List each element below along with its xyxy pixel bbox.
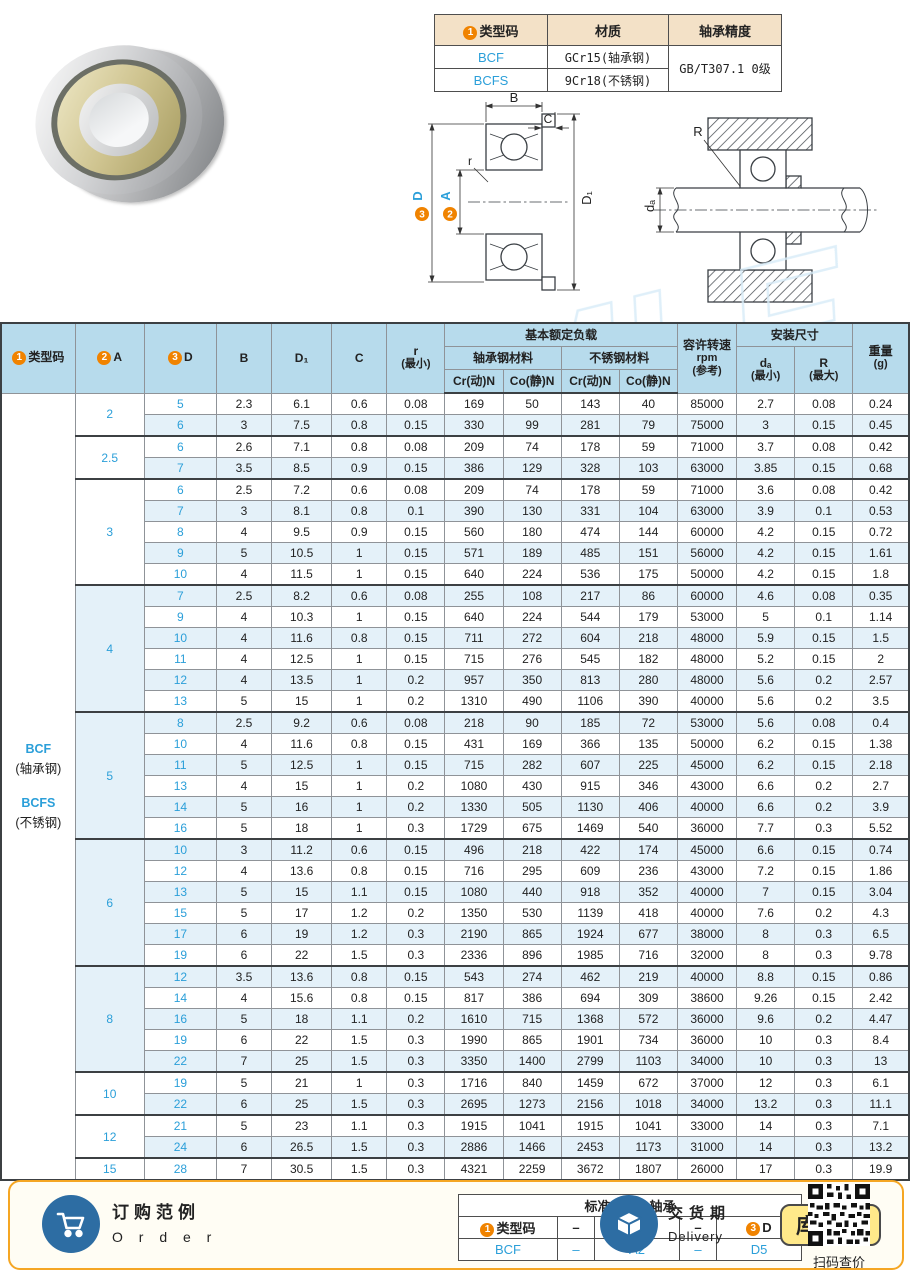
- cell-co-stainless: 79: [619, 415, 677, 437]
- cell-b: 2.6: [216, 436, 271, 458]
- cell-b: 4: [216, 734, 271, 755]
- cell-r: 0.15: [387, 649, 445, 670]
- cell-d: 24: [144, 1137, 216, 1159]
- spec-table: 1类型码 材质 轴承精度 BCF GCr15(轴承钢) GB/T307.1 0级…: [434, 14, 782, 92]
- cell-r: 0.3: [387, 1030, 445, 1051]
- cell-d1: 7.5: [272, 415, 332, 437]
- cell-da: 10: [737, 1051, 795, 1073]
- cell-b: 7: [216, 1158, 271, 1180]
- cell-r-max: 0.08: [795, 585, 853, 607]
- cell-co-stainless: 672: [619, 1072, 677, 1094]
- bearing-photo: [22, 26, 232, 221]
- cell-d: 12: [144, 861, 216, 882]
- cell-b: 6: [216, 945, 271, 967]
- cell-a: 10: [75, 1072, 144, 1115]
- spec-code-bcfs[interactable]: BCFS: [435, 69, 548, 92]
- cell-da: 7.2: [737, 861, 795, 882]
- cell-weight: 1.14: [853, 607, 909, 628]
- cell-co-stainless: 86: [619, 585, 677, 607]
- cell-r-max: 0.2: [795, 691, 853, 713]
- badge-1-icon: 1: [12, 351, 26, 365]
- cell-cr-stainless: 918: [561, 882, 619, 903]
- cell-d1: 21: [272, 1072, 332, 1094]
- cell-co-steel: 490: [503, 691, 561, 713]
- cell-c: 1.5: [332, 1158, 387, 1180]
- cell-b: 5: [216, 882, 271, 903]
- cell-c: 0.6: [332, 712, 387, 734]
- cell-cr-steel: 2886: [445, 1137, 503, 1159]
- cell-rpm: 26000: [677, 1158, 736, 1180]
- cell-co-stainless: 1103: [619, 1051, 677, 1073]
- cell-d: 5: [144, 393, 216, 415]
- cell-d: 11: [144, 755, 216, 776]
- cell-rpm: 43000: [677, 776, 736, 797]
- cell-co-stainless: 734: [619, 1030, 677, 1051]
- cell-r-max: 0.3: [795, 1094, 853, 1116]
- cell-rpm: 63000: [677, 501, 736, 522]
- cell-a: 6: [75, 839, 144, 966]
- cell-r: 0.3: [387, 818, 445, 840]
- cell-r: 0.1: [387, 501, 445, 522]
- cell-c: 1.1: [332, 882, 387, 903]
- cell-co-stainless: 1018: [619, 1094, 677, 1116]
- cell-co-steel: 1041: [503, 1115, 561, 1137]
- cell-r: 0.3: [387, 1072, 445, 1094]
- cell-co-steel: 99: [503, 415, 561, 437]
- main-table: 1类型码 2A 3D B D₁ C r(最小) 基本额定负载 容许转速rpm(参…: [0, 322, 910, 1181]
- cell-rpm: 45000: [677, 755, 736, 776]
- cell-d1: 22: [272, 945, 332, 967]
- cell-cr-steel: 571: [445, 543, 503, 564]
- cell-c: 1: [332, 691, 387, 713]
- cell-weight: 0.72: [853, 522, 909, 543]
- table-row: 1528730.51.50.3432122593672180726000170.…: [1, 1158, 909, 1180]
- cell-d: 8: [144, 712, 216, 734]
- cell-cr-stainless: 694: [561, 988, 619, 1009]
- cell-cr-stainless: 1368: [561, 1009, 619, 1030]
- cell-weight: 3.04: [853, 882, 909, 903]
- cell-cr-stainless: 604: [561, 628, 619, 649]
- cell-d1: 12.5: [272, 755, 332, 776]
- cell-b: 4: [216, 861, 271, 882]
- cell-co-stainless: 309: [619, 988, 677, 1009]
- cell-cr-stainless: 422: [561, 839, 619, 861]
- cell-da: 6.6: [737, 839, 795, 861]
- cell-b: 5: [216, 818, 271, 840]
- delivery-label: 交货期 Delivery: [668, 1202, 731, 1248]
- cell-cr-stainless: 813: [561, 670, 619, 691]
- cell-cr-stainless: 1985: [561, 945, 619, 967]
- cell-b: 4: [216, 776, 271, 797]
- cell-d1: 6.1: [272, 393, 332, 415]
- cell-r-max: 0.15: [795, 458, 853, 480]
- cell-cr-steel: 1990: [445, 1030, 503, 1051]
- cell-weight: 2.42: [853, 988, 909, 1009]
- cell-d1: 22: [272, 1030, 332, 1051]
- cell-r-max: 0.15: [795, 628, 853, 649]
- cell-weight: 11.1: [853, 1094, 909, 1116]
- cell-r: 0.15: [387, 543, 445, 564]
- cell-co-stainless: 346: [619, 776, 677, 797]
- cell-r: 0.08: [387, 585, 445, 607]
- cell-cr-stainless: 328: [561, 458, 619, 480]
- header-load-group: 基本额定负载: [445, 323, 678, 347]
- cell-rpm: 43000: [677, 861, 736, 882]
- cell-weight: 0.45: [853, 415, 909, 437]
- cell-co-steel: 675: [503, 818, 561, 840]
- cell-cr-steel: 711: [445, 628, 503, 649]
- cell-a: 12: [75, 1115, 144, 1158]
- cell-b: 5: [216, 691, 271, 713]
- header-co-stainless: Co(静)N: [619, 370, 677, 394]
- cell-co-steel: 865: [503, 924, 561, 945]
- cell-co-stainless: 103: [619, 458, 677, 480]
- cell-co-steel: 715: [503, 1009, 561, 1030]
- cell-co-steel: 1400: [503, 1051, 561, 1073]
- cell-co-steel: 295: [503, 861, 561, 882]
- header-stainless-group: 不锈钢材料: [561, 347, 677, 370]
- cell-weight: 4.3: [853, 903, 909, 924]
- cell-co-steel: 129: [503, 458, 561, 480]
- cell-co-stainless: 59: [619, 436, 677, 458]
- cell-r: 0.3: [387, 1137, 445, 1159]
- cell-rpm: 31000: [677, 1137, 736, 1159]
- cell-d: 9: [144, 543, 216, 564]
- cell-r-max: 0.3: [795, 1051, 853, 1073]
- cell-rpm: 60000: [677, 522, 736, 543]
- svg-text:3: 3: [419, 210, 425, 221]
- cell-cr-steel: 1729: [445, 818, 503, 840]
- cell-co-steel: 90: [503, 712, 561, 734]
- cell-c: 1: [332, 607, 387, 628]
- cell-b: 7: [216, 1051, 271, 1073]
- cell-r-max: 0.2: [795, 1009, 853, 1030]
- cell-weight: 8.4: [853, 1030, 909, 1051]
- cell-da: 3.6: [737, 479, 795, 501]
- cell-d1: 13.6: [272, 966, 332, 988]
- cell-cr-stainless: 1139: [561, 903, 619, 924]
- order-dash: –: [558, 1217, 595, 1239]
- cell-co-steel: 272: [503, 628, 561, 649]
- cell-d: 6: [144, 415, 216, 437]
- cell-weight: 2.57: [853, 670, 909, 691]
- cell-co-steel: 1273: [503, 1094, 561, 1116]
- cell-d: 19: [144, 945, 216, 967]
- cell-r-max: 0.3: [795, 818, 853, 840]
- cell-r-max: 0.15: [795, 522, 853, 543]
- cell-rpm: 48000: [677, 628, 736, 649]
- cell-rpm: 45000: [677, 839, 736, 861]
- cell-c: 1: [332, 670, 387, 691]
- cell-co-stainless: 225: [619, 755, 677, 776]
- cell-co-stainless: 572: [619, 1009, 677, 1030]
- cell-b: 5: [216, 755, 271, 776]
- cell-weight: 1.61: [853, 543, 909, 564]
- cell-rpm: 53000: [677, 607, 736, 628]
- cell-d1: 15: [272, 776, 332, 797]
- cell-c: 0.8: [332, 988, 387, 1009]
- cell-c: 1: [332, 797, 387, 818]
- cell-co-steel: 274: [503, 966, 561, 988]
- cell-c: 1.5: [332, 1030, 387, 1051]
- cell-rpm: 40000: [677, 691, 736, 713]
- cell-cr-steel: 2190: [445, 924, 503, 945]
- cell-r-max: 0.3: [795, 1072, 853, 1094]
- cell-weight: 4.47: [853, 1009, 909, 1030]
- cell-co-steel: 896: [503, 945, 561, 967]
- cell-co-steel: 224: [503, 607, 561, 628]
- cell-cr-steel: 330: [445, 415, 503, 437]
- cell-c: 1: [332, 1072, 387, 1094]
- cell-co-steel: 180: [503, 522, 561, 543]
- cell-d1: 8.1: [272, 501, 332, 522]
- table-row: 101952110.31716840145967237000120.36.1: [1, 1072, 909, 1094]
- cell-co-stainless: 406: [619, 797, 677, 818]
- cell-weight: 0.86: [853, 966, 909, 988]
- cell-rpm: 56000: [677, 543, 736, 564]
- cell-weight: 6.1: [853, 1072, 909, 1094]
- cell-co-steel: 430: [503, 776, 561, 797]
- cell-cr-stainless: 1924: [561, 924, 619, 945]
- cell-d: 10: [144, 564, 216, 586]
- cell-da: 3.9: [737, 501, 795, 522]
- cell-d: 12: [144, 966, 216, 988]
- cell-da: 8: [737, 945, 795, 967]
- cell-r: 0.3: [387, 945, 445, 967]
- cell-da: 6.6: [737, 797, 795, 818]
- header-c: C: [332, 323, 387, 393]
- cell-co-stainless: 352: [619, 882, 677, 903]
- header-co-steel: Co(静)N: [503, 370, 561, 394]
- cell-cr-stainless: 545: [561, 649, 619, 670]
- cell-cr-steel: 1350: [445, 903, 503, 924]
- cell-c: 0.8: [332, 734, 387, 755]
- cell-d1: 19: [272, 924, 332, 945]
- cell-da: 3.7: [737, 436, 795, 458]
- cell-b: 5: [216, 797, 271, 818]
- dim-d1-label: D₁: [579, 191, 594, 205]
- cell-d1: 8.2: [272, 585, 332, 607]
- cell-cr-steel: 2336: [445, 945, 503, 967]
- cell-r-max: 0.15: [795, 415, 853, 437]
- header-cr-stainless: Cr(动)N: [561, 370, 619, 394]
- cell-r: 0.15: [387, 564, 445, 586]
- cell-weight: 0.24: [853, 393, 909, 415]
- cell-co-steel: 530: [503, 903, 561, 924]
- cell-cr-stainless: 536: [561, 564, 619, 586]
- cell-rpm: 60000: [677, 585, 736, 607]
- cell-c: 0.8: [332, 436, 387, 458]
- cell-weight: 1.86: [853, 861, 909, 882]
- cell-d1: 25: [272, 1094, 332, 1116]
- cell-da: 10: [737, 1030, 795, 1051]
- cell-r: 0.15: [387, 861, 445, 882]
- cell-cr-steel: 640: [445, 564, 503, 586]
- cell-c: 0.6: [332, 839, 387, 861]
- delivery-icon: [600, 1195, 658, 1253]
- cell-rpm: 75000: [677, 415, 736, 437]
- cell-r-max: 0.2: [795, 776, 853, 797]
- cell-cr-steel: 716: [445, 861, 503, 882]
- cell-da: 3: [737, 415, 795, 437]
- table-row: 8123.513.60.80.15543274462219400008.80.1…: [1, 966, 909, 988]
- cell-b: 5: [216, 543, 271, 564]
- cell-cr-steel: 2695: [445, 1094, 503, 1116]
- cell-weight: 0.42: [853, 436, 909, 458]
- cell-weight: 0.68: [853, 458, 909, 480]
- cell-cr-stainless: 1106: [561, 691, 619, 713]
- cell-cr-steel: 715: [445, 755, 503, 776]
- cell-d1: 18: [272, 818, 332, 840]
- cell-r: 0.15: [387, 734, 445, 755]
- cell-rpm: 40000: [677, 882, 736, 903]
- cell-r-max: 0.3: [795, 924, 853, 945]
- cell-rpm: 37000: [677, 1072, 736, 1094]
- cell-cr-stainless: 1459: [561, 1072, 619, 1094]
- cell-d: 10: [144, 839, 216, 861]
- cell-c: 1: [332, 818, 387, 840]
- cell-cr-steel: 1080: [445, 882, 503, 903]
- cell-r-max: 0.2: [795, 670, 853, 691]
- cell-rpm: 85000: [677, 393, 736, 415]
- cell-co-steel: 74: [503, 436, 561, 458]
- cell-cr-stainless: 474: [561, 522, 619, 543]
- cell-da: 2.7: [737, 393, 795, 415]
- cell-r: 0.15: [387, 839, 445, 861]
- cell-cr-stainless: 185: [561, 712, 619, 734]
- cell-rpm: 38600: [677, 988, 736, 1009]
- cell-r: 0.2: [387, 903, 445, 924]
- cell-cr-stainless: 331: [561, 501, 619, 522]
- cell-d: 10: [144, 628, 216, 649]
- cell-co-steel: 218: [503, 839, 561, 861]
- header-d1: D₁: [272, 323, 332, 393]
- cell-weight: 1.5: [853, 628, 909, 649]
- badge-1-icon: 1: [463, 26, 477, 40]
- cell-b: 2.5: [216, 712, 271, 734]
- cell-co-steel: 2259: [503, 1158, 561, 1180]
- cell-c: 0.6: [332, 585, 387, 607]
- cell-cr-steel: 1330: [445, 797, 503, 818]
- spec-header-type: 1类型码: [435, 15, 548, 46]
- cell-da: 4.6: [737, 585, 795, 607]
- cell-c: 1.2: [332, 903, 387, 924]
- cell-c: 0.8: [332, 501, 387, 522]
- cell-d: 22: [144, 1051, 216, 1073]
- cell-d: 6: [144, 479, 216, 501]
- cell-co-stainless: 72: [619, 712, 677, 734]
- cell-c: 0.6: [332, 479, 387, 501]
- cell-cr-steel: 1610: [445, 1009, 503, 1030]
- cell-b: 4: [216, 564, 271, 586]
- cell-d: 22: [144, 1094, 216, 1116]
- cell-co-steel: 505: [503, 797, 561, 818]
- cell-da: 8: [737, 924, 795, 945]
- cell-co-stainless: 151: [619, 543, 677, 564]
- cell-c: 1: [332, 543, 387, 564]
- cell-cr-stainless: 1901: [561, 1030, 619, 1051]
- cell-rpm: 63000: [677, 458, 736, 480]
- cell-cr-stainless: 1130: [561, 797, 619, 818]
- cell-r-max: 0.2: [795, 903, 853, 924]
- cell-rpm: 40000: [677, 797, 736, 818]
- cell-d: 16: [144, 818, 216, 840]
- type-code-cell: BCF(轴承钢)BCFS(不锈钢): [1, 393, 75, 1180]
- cell-da: 13.2: [737, 1094, 795, 1116]
- cell-cr-steel: 390: [445, 501, 503, 522]
- cell-da: 5.6: [737, 712, 795, 734]
- dim-d-label: 3 D: [410, 191, 429, 221]
- cell-b: 2.3: [216, 393, 271, 415]
- cell-weight: 3.5: [853, 691, 909, 713]
- cell-co-stainless: 1807: [619, 1158, 677, 1180]
- cell-r: 0.3: [387, 1158, 445, 1180]
- cell-rpm: 36000: [677, 1030, 736, 1051]
- cell-weight: 0.42: [853, 479, 909, 501]
- cell-da: 6.2: [737, 755, 795, 776]
- badge-3-icon: 3: [168, 351, 182, 365]
- cell-rpm: 32000: [677, 945, 736, 967]
- cell-r: 0.2: [387, 1009, 445, 1030]
- cell-r: 0.15: [387, 882, 445, 903]
- cell-r: 0.3: [387, 1115, 445, 1137]
- cell-da: 7: [737, 882, 795, 903]
- cell-r: 0.2: [387, 797, 445, 818]
- cell-cr-stainless: 2156: [561, 1094, 619, 1116]
- cell-cr-steel: 1080: [445, 776, 503, 797]
- dim-r-label: r: [468, 154, 472, 168]
- cell-d1: 11.6: [272, 734, 332, 755]
- cell-r: 0.15: [387, 966, 445, 988]
- cell-cr-steel: 1915: [445, 1115, 503, 1137]
- cell-cr-stainless: 1915: [561, 1115, 619, 1137]
- cell-r-max: 0.1: [795, 607, 853, 628]
- cell-rpm: 50000: [677, 734, 736, 755]
- cell-r: 0.2: [387, 670, 445, 691]
- spec-header-precision: 轴承精度: [669, 15, 782, 46]
- cell-cr-steel: 715: [445, 649, 503, 670]
- cell-cr-steel: 957: [445, 670, 503, 691]
- cell-cr-stainless: 609: [561, 861, 619, 882]
- cell-r: 0.15: [387, 522, 445, 543]
- cell-co-stainless: 59: [619, 479, 677, 501]
- cell-r: 0.3: [387, 924, 445, 945]
- cell-r-max: 0.3: [795, 1030, 853, 1051]
- spec-code-bcf[interactable]: BCF: [435, 46, 548, 69]
- footer-bar: 订购范例 O r d e r 标准品名：轴承 1类型码 – 2A – 3D BC…: [8, 1180, 904, 1270]
- cell-d: 17: [144, 924, 216, 945]
- cell-r-max: 0.15: [795, 839, 853, 861]
- cell-b: 5: [216, 903, 271, 924]
- dim-b-label: B: [510, 92, 519, 105]
- cell-d1: 16: [272, 797, 332, 818]
- cell-c: 0.8: [332, 415, 387, 437]
- cell-weight: 1.8: [853, 564, 909, 586]
- cell-r-max: 0.15: [795, 882, 853, 903]
- cell-da: 6.2: [737, 734, 795, 755]
- cell-r: 0.2: [387, 691, 445, 713]
- cell-da: 5.6: [737, 691, 795, 713]
- cell-cr-steel: 3350: [445, 1051, 503, 1073]
- cell-b: 4: [216, 607, 271, 628]
- cell-co-steel: 865: [503, 1030, 561, 1051]
- cell-weight: 13: [853, 1051, 909, 1073]
- cell-da: 17: [737, 1158, 795, 1180]
- cell-d: 13: [144, 882, 216, 903]
- order-dash: –: [558, 1239, 595, 1261]
- cell-c: 1: [332, 649, 387, 670]
- cell-b: 4: [216, 670, 271, 691]
